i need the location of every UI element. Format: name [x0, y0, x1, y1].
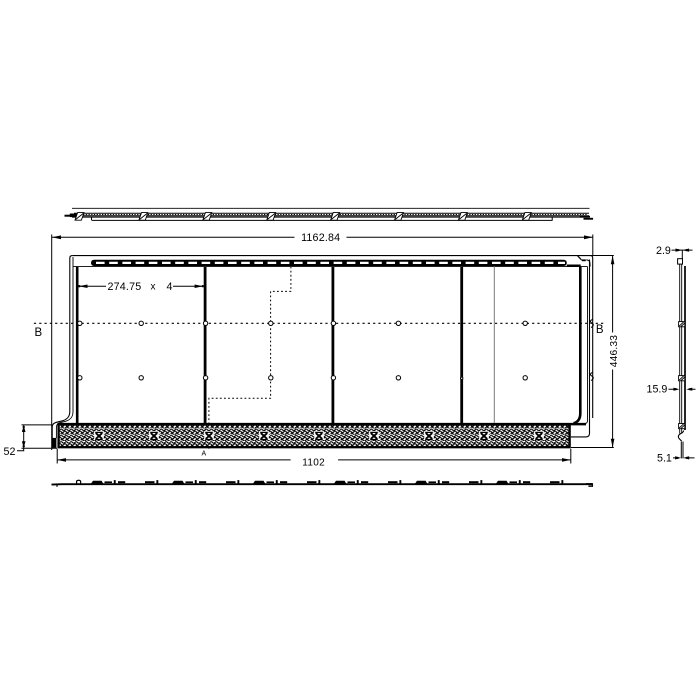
- svg-text:1102: 1102: [302, 457, 325, 468]
- svg-text:B: B: [596, 324, 604, 336]
- svg-text:446.33: 446.33: [609, 335, 620, 367]
- svg-text:274.75: 274.75: [108, 281, 142, 293]
- svg-text:4: 4: [167, 281, 173, 293]
- svg-text:52: 52: [4, 446, 16, 458]
- svg-text:x: x: [151, 282, 156, 293]
- svg-text:1162.84: 1162.84: [301, 232, 340, 244]
- svg-text:5.1: 5.1: [657, 453, 672, 465]
- svg-text:B: B: [35, 327, 43, 339]
- svg-text:A: A: [202, 451, 207, 458]
- svg-text:15.9: 15.9: [647, 384, 668, 396]
- svg-text:2.9: 2.9: [656, 245, 671, 257]
